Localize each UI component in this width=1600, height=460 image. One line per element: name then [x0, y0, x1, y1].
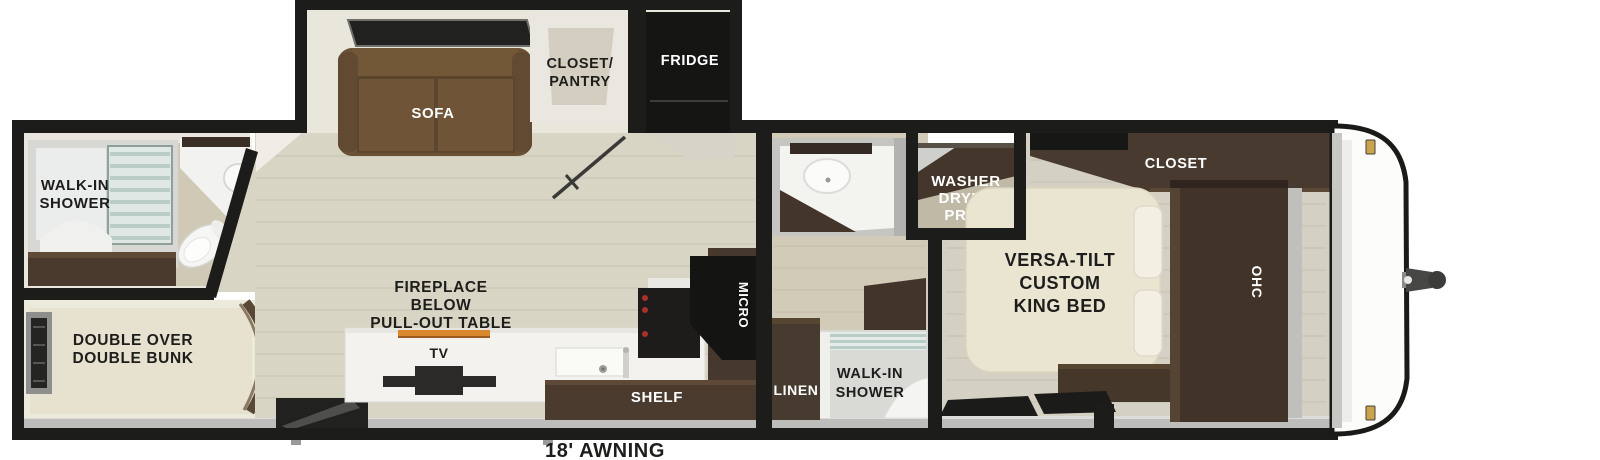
wall-bath-bedroom	[928, 230, 942, 428]
pillow	[1134, 206, 1162, 278]
entry-step	[276, 398, 368, 430]
slide-window	[348, 20, 534, 46]
ohc-label: OHC	[1249, 266, 1265, 299]
micro-label: MICRO	[736, 282, 751, 328]
bed-label-line1: VERSA-TILT	[1005, 250, 1116, 270]
cap-clip	[1366, 406, 1375, 420]
awning-arm	[291, 440, 301, 445]
shower-glass-panel	[108, 146, 172, 244]
fireplace-label-line1: FIREPLACE	[394, 279, 487, 296]
fridge-label: FRIDGE	[661, 53, 719, 69]
sofa	[338, 48, 532, 156]
sofa-label: SOFA	[411, 105, 454, 122]
wall-living-bath	[756, 133, 772, 428]
rear-walk-in-shower	[28, 140, 178, 286]
rear-shower-label-line2: SHOWER	[39, 195, 110, 212]
cap-clip	[1366, 140, 1375, 154]
mid-bathroom: WALK-IN SHOWER LINEN	[772, 133, 928, 420]
sink-bowl	[804, 159, 850, 193]
awning-label: 18' AWNING	[545, 440, 665, 460]
fireplace-label-line3: PULL-OUT TABLE	[370, 315, 512, 332]
ohc-wardrobe: OHC	[1170, 180, 1302, 422]
closet-pantry: CLOSET/ PANTRY	[530, 10, 628, 122]
bunk-label-line2: DOUBLE BUNK	[72, 350, 193, 367]
bunk-window	[26, 312, 52, 394]
mid-bath-vanity	[772, 138, 908, 236]
floorplan-svg: WALK-IN SHOWER DOUBLE OVER DOUBLE BUNK	[0, 0, 1600, 460]
bunk-label-line1: DOUBLE OVER	[73, 332, 193, 349]
hitch-coupler	[1402, 268, 1446, 292]
fireplace-label-line2: BELOW	[411, 297, 472, 314]
linen-label: LINEN	[774, 382, 819, 398]
fridge: FRIDGE	[646, 12, 732, 133]
rear-shower-label-line1: WALK-IN	[41, 177, 109, 194]
mid-shower-label-line2: SHOWER	[836, 385, 905, 401]
bed-label-line2: CUSTOM	[1019, 273, 1100, 293]
kitchen-sink	[556, 347, 629, 378]
tv-label: TV	[429, 345, 448, 361]
pillow	[1134, 290, 1162, 356]
closet-label: CLOSET	[1145, 156, 1207, 172]
king-bed: VERSA-TILT CUSTOM KING BED	[966, 188, 1162, 372]
bed-label-line3: KING BED	[1014, 296, 1107, 316]
travel-trailer-floorplan: WALK-IN SHOWER DOUBLE OVER DOUBLE BUNK	[0, 0, 1600, 460]
faucet	[623, 350, 629, 378]
mid-shower-label-line1: WALK-IN	[837, 366, 903, 382]
linen-cabinet: LINEN	[772, 318, 820, 420]
closet-pantry-label-line2: PANTRY	[549, 74, 611, 90]
closet-pantry-label-line1: CLOSET/	[546, 56, 613, 72]
shelf-label: SHELF	[631, 389, 683, 406]
